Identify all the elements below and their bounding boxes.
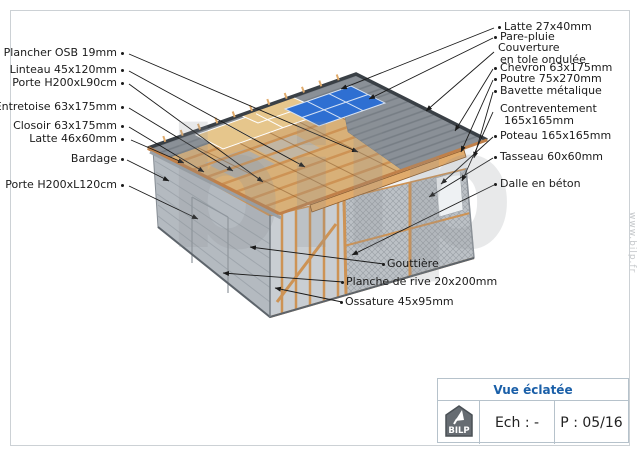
leader-dot [498, 26, 501, 29]
leader-dot [340, 301, 343, 304]
leader-dot [121, 125, 124, 128]
page-number: P : 05/16 [554, 401, 628, 444]
leader-dot [494, 135, 497, 138]
leader-dot [494, 36, 497, 39]
label-porte-90: Porte H200xL90cm [12, 77, 124, 89]
logo-text: BILP [448, 426, 469, 436]
leader-couverture [426, 52, 494, 111]
leader-dot [494, 90, 497, 93]
drawing-title: Vue éclatée [438, 379, 628, 401]
label-bardage: Bardage [71, 153, 124, 165]
wall-opening [436, 171, 463, 217]
label-plancher-osb: Plancher OSB 19mm [4, 47, 124, 59]
leader-dot [494, 183, 497, 186]
label-entretoise: Entretoise 63x175mm [0, 101, 124, 113]
label-closoir: Closoir 63x175mm [13, 120, 124, 132]
leader-dot [121, 184, 124, 187]
label-planche-rive: Planche de rive 20x200mm [341, 276, 497, 288]
scale-value: Ech : - [479, 401, 554, 444]
label-porte-120: Porte H200xL120cm [5, 179, 124, 191]
leader-dot [121, 52, 124, 55]
label-bavette: Bavette métalique [494, 85, 602, 97]
title-block: Vue éclatée BILP Ech : - P : 05/16 [437, 378, 629, 443]
label-gouttiere: Gouttière [382, 258, 439, 270]
leader-dot [121, 158, 124, 161]
leader-dot [121, 106, 124, 109]
leader-dot [121, 138, 124, 141]
leader-dot [494, 156, 497, 159]
leader-dot [121, 82, 124, 85]
leader-dot [382, 263, 385, 266]
leader-latte-27 [341, 28, 494, 89]
label-tasseau: Tasseau 60x60mm [494, 151, 603, 163]
plan-page: bilp www.bilp.fr Plancher OSB 19mm Linte… [0, 0, 640, 452]
leader-dot [494, 78, 497, 81]
label-latte-46: Latte 46x60mm [29, 133, 124, 145]
label-contreventement: Contreventement165x165mm [500, 103, 597, 127]
leader-dot [341, 281, 344, 284]
leader-dot [121, 69, 124, 72]
label-linteau: Linteau 45x120mm [10, 64, 124, 76]
leader-dot [494, 67, 497, 70]
label-ossature: Ossature 45x95mm [340, 296, 454, 308]
label-dalle: Dalle en béton [494, 178, 581, 190]
label-poteau: Poteau 165x165mm [494, 130, 611, 142]
bilp-logo: BILP [438, 401, 479, 444]
